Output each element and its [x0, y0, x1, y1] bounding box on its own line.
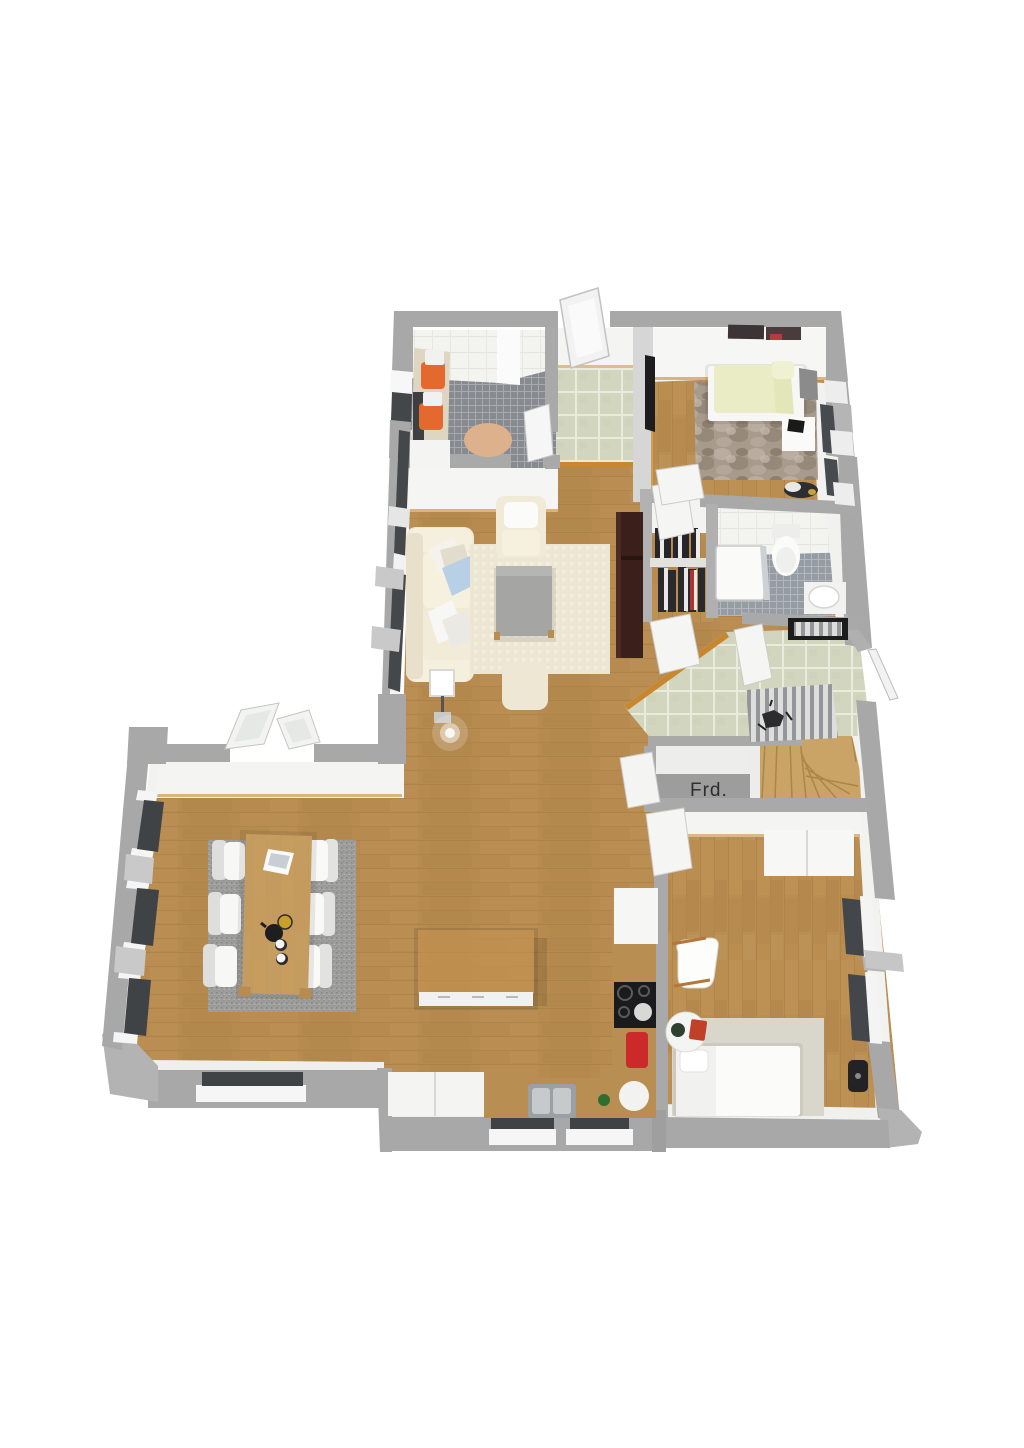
svg-text:Frd.: Frd.: [690, 780, 728, 801]
